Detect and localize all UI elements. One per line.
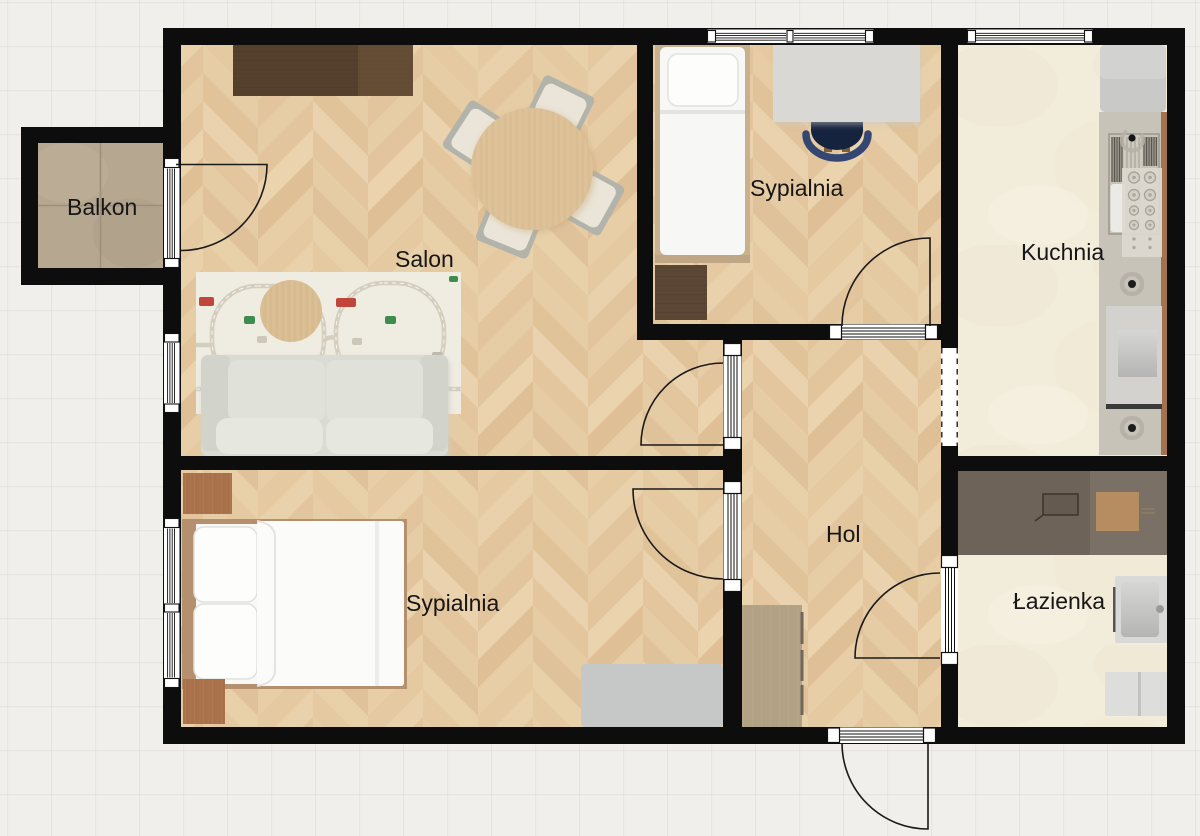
svg-text:Sypialnia: Sypialnia: [750, 175, 844, 201]
svg-text:Kuchnia: Kuchnia: [1021, 239, 1104, 265]
svg-text:Salon: Salon: [395, 246, 454, 272]
svg-text:Sypialnia: Sypialnia: [406, 590, 500, 616]
svg-text:Hol: Hol: [826, 521, 861, 547]
svg-text:Balkon: Balkon: [67, 194, 137, 220]
svg-text:Łazienka: Łazienka: [1013, 588, 1105, 614]
